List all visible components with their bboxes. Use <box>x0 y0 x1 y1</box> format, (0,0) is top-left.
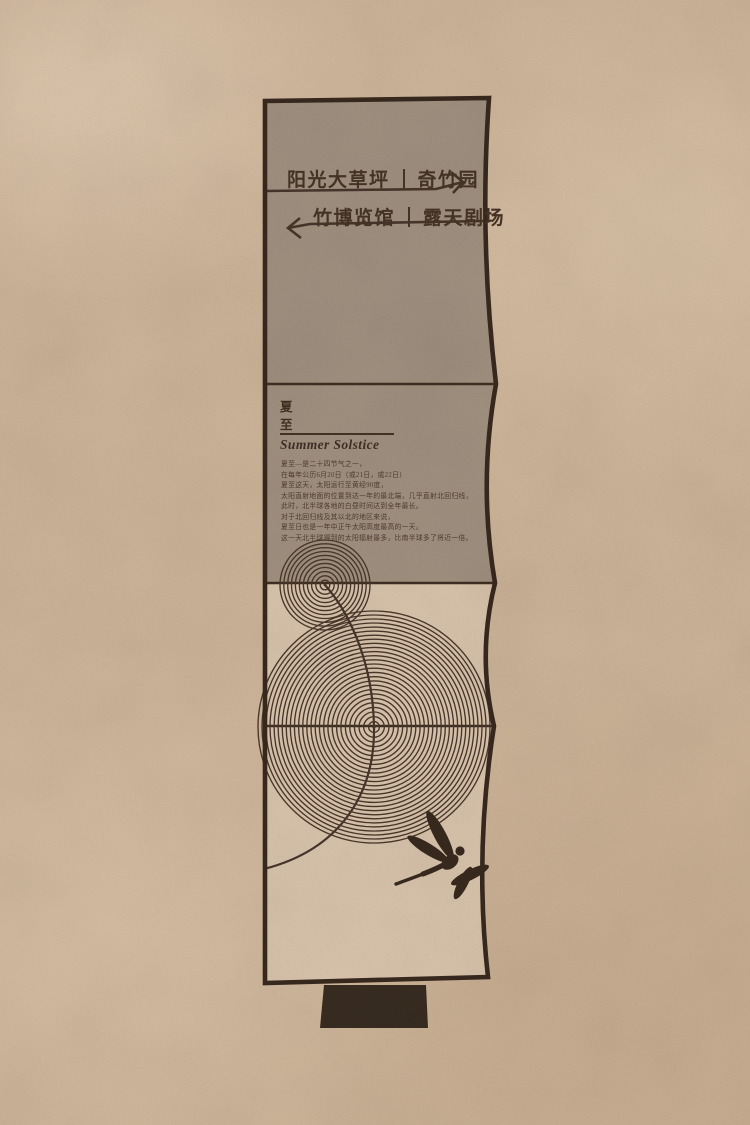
paragraph-line: 这一天北半球得到的太阳辐射最多，比南半球多了将近一倍。 <box>281 534 481 545</box>
paragraph-line: 对于北回归线及其以北的地区来说， <box>281 513 481 524</box>
direction-2-left-label: 竹博览馆 <box>313 203 395 230</box>
solar-term-paragraph: 夏至—是二十四节气之一， 在每年公历6月20日（或21日，或22日） 夏至这天，… <box>281 460 481 544</box>
direction-2-right-label: 露天剧场 <box>423 203 505 230</box>
solar-term-rule <box>280 433 394 435</box>
direction-row-2: 竹博览馆 露天剧场 <box>313 203 505 230</box>
dragonfly-head <box>455 846 464 855</box>
paragraph-line: 夏至—是二十四节气之一， <box>281 460 481 471</box>
solar-term-en: Summer Solstice <box>280 437 379 453</box>
direction-1-left-label: 阳光大草坪 <box>287 165 390 192</box>
solar-term-cn: 夏至 <box>280 399 295 434</box>
paragraph-line: 此时，北半球各地的白昼时间达到全年最长。 <box>281 502 481 513</box>
paragraph-line: 在每年公历6月20日（或21日，或22日） <box>281 471 481 482</box>
direction-1-right-label: 奇竹园 <box>418 165 480 192</box>
paragraph-line: 夏至日也是一年中正午太阳高度最高的一天。 <box>281 523 481 534</box>
sign-base <box>320 985 428 1028</box>
paragraph-line: 太阳直射地面的位置到达一年的最北端，几乎直射北回归线， <box>281 492 481 503</box>
direction-row-1: 阳光大草坪 奇竹园 <box>287 165 479 192</box>
paragraph-line: 夏至这天，太阳运行至黄经90度， <box>281 481 481 492</box>
direction-2-separator <box>408 207 410 227</box>
poster-canvas: 阳光大草坪 奇竹园 竹博览馆 露天剧场 夏至 Summer Solstice 夏… <box>0 0 750 1125</box>
direction-1-separator <box>403 169 405 189</box>
